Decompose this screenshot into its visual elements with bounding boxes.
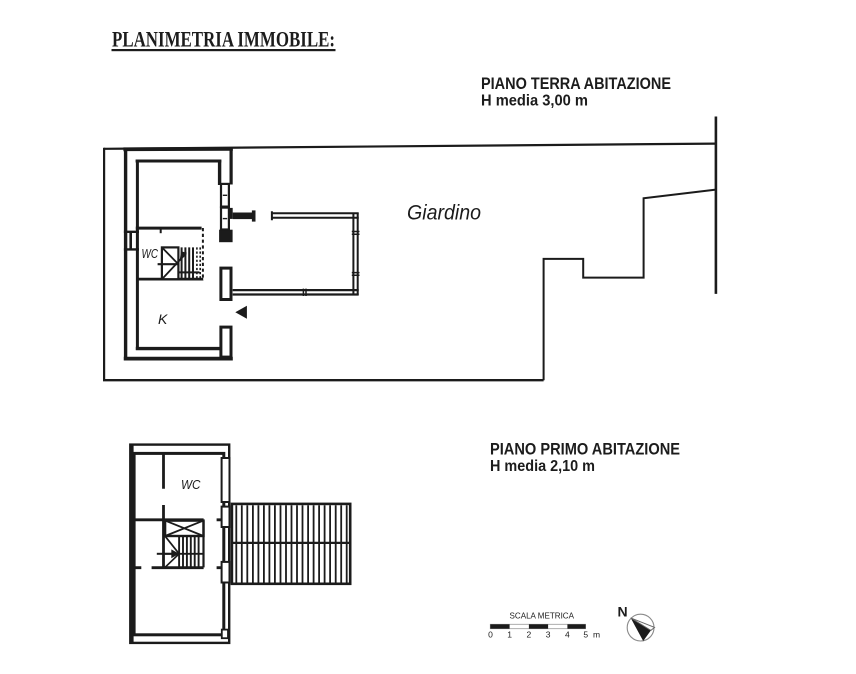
- svg-text:m: m: [593, 630, 600, 640]
- svg-text:H media 3,00 m: H media 3,00 m: [481, 93, 588, 110]
- svg-text:5: 5: [583, 630, 588, 640]
- svg-text:PIANO PRIMO ABITAZIONE: PIANO PRIMO ABITAZIONE: [490, 440, 680, 459]
- svg-text:Giardino: Giardino: [407, 201, 481, 225]
- svg-text:N: N: [618, 603, 628, 619]
- svg-text:K: K: [158, 311, 168, 327]
- svg-text:PIANO TERRA ABITAZIONE: PIANO TERRA ABITAZIONE: [481, 74, 671, 93]
- svg-text:3: 3: [546, 630, 551, 640]
- svg-text:H media 2,10 m: H media 2,10 m: [490, 458, 595, 475]
- svg-text:0: 0: [488, 630, 493, 640]
- svg-text:PLANIMETRIA IMMOBILE:: PLANIMETRIA IMMOBILE:: [112, 27, 335, 52]
- svg-text:WC: WC: [142, 247, 159, 261]
- svg-text:WC: WC: [181, 477, 201, 492]
- svg-text:1: 1: [507, 630, 512, 640]
- svg-text:4: 4: [565, 630, 570, 640]
- svg-text:2: 2: [527, 630, 532, 640]
- svg-text:SCALA METRICA: SCALA METRICA: [510, 611, 575, 620]
